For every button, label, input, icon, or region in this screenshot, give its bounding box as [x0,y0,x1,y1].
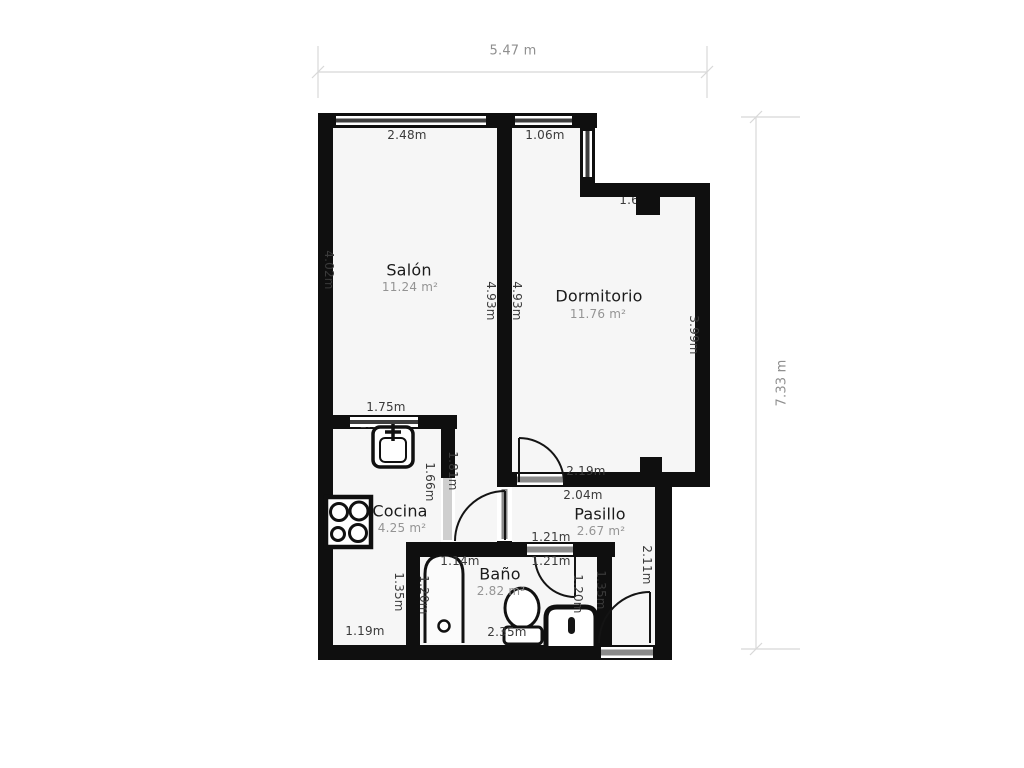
dim-salon-window: 2.48m [387,128,426,142]
dim-dormitorio-right: 3.99m [687,315,701,354]
step-pillar [636,195,660,215]
dim-salon-passage: 1.81m [446,451,460,490]
bano-name: Baño [479,565,521,584]
dim-cocina-bottom: 1.19m [345,624,384,638]
cocina-area: 4.25 m² [378,521,426,535]
dim-bano-door-top: 1.21m [531,530,570,544]
left-outer-wall [318,113,333,660]
salon-area: 11.24 m² [382,280,438,294]
salon-passage-floor [455,415,497,542]
entrance-door-sill [601,647,653,658]
dim-stove-width: 0.60m [323,507,337,546]
dormitorio-name: Dormitorio [555,287,642,306]
floor-plan: 1.64m 1.60m 0.60m [0,0,1024,768]
pasillo-right-wall [655,487,672,660]
dim-dormitorio-left: 4.93m [510,281,524,320]
dim-pasillo-bano-wall: 1.35m [594,570,608,609]
cocina-name: Cocina [372,502,427,521]
dim-salon-left: 4.02m [322,250,336,289]
bano-top-wall [406,542,615,557]
dim-bano-door-bottom: 1.21m [531,554,570,568]
dormitorio-area: 11.76 m² [570,307,626,321]
dim-cocina-bano-wall: 1.35m [392,572,406,611]
salon-name: Salón [386,261,431,280]
dim-bano-tub: 1.14m [440,554,479,568]
dim-pasillo-top: 2.04m [563,488,602,502]
dim-dormitorio-window: 1.06m [525,128,564,142]
pasillo-name: Pasillo [574,505,626,524]
dormitorio-window [515,116,572,125]
overall-height-label: 7.33 m [775,360,790,407]
pasillo-corner-pillar [640,457,662,472]
step-window [583,131,592,177]
bano-area: 2.82 m² [477,584,525,598]
dormitorio-floor-right [580,197,695,472]
dim-dormitorio-bottom: 2.19m [566,464,605,478]
salon-window [336,116,486,125]
salon-door-sill [499,489,510,539]
overall-width-label: 5.47 m [490,44,537,59]
dormitorio-door-sill [517,474,563,485]
dim-bano-right: 1.20m [571,574,585,613]
dim-bano-left: 1.20m [417,575,431,614]
pasillo-area: 2.67 m² [577,524,625,538]
dim-cocina-window: 1.75m [366,400,405,414]
dim-cocina-door: 1.66m [423,462,437,501]
dim-salon-right: 4.93m [484,281,498,320]
dim-pasillo-right: 2.11m [640,545,654,584]
cocina-window [350,417,418,427]
dim-bano-bottom: 2.35m [487,625,526,639]
